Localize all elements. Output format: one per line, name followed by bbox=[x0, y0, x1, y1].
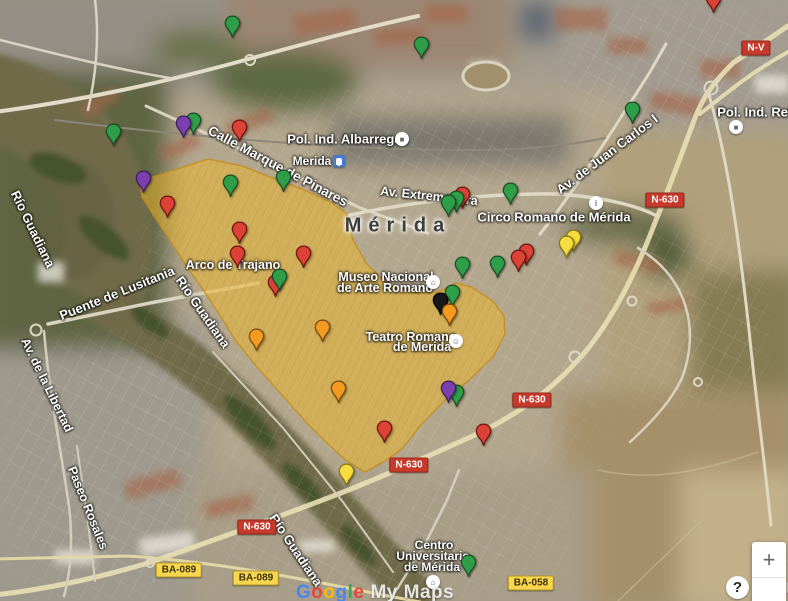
zoom-in-button[interactable]: + bbox=[752, 542, 786, 578]
map-pin-purple[interactable] bbox=[175, 115, 192, 139]
road-badge-ba-058: BA-058 bbox=[508, 576, 554, 591]
road-badge-n-v: N-V bbox=[741, 41, 770, 56]
google-logo-letter: o bbox=[311, 582, 323, 601]
my-maps-label: My Maps bbox=[370, 582, 454, 601]
road-badge-n-630: N-630 bbox=[645, 193, 684, 208]
pol-ind-albarregas-label: Pol. Ind. Albarregas bbox=[287, 132, 409, 147]
map-pin-orange[interactable] bbox=[330, 380, 347, 404]
zoom-slider[interactable] bbox=[752, 578, 786, 601]
map-pin-red[interactable] bbox=[376, 420, 393, 444]
google-logo-letter: G bbox=[296, 582, 311, 601]
teatro-romano-line2-label: de Merida bbox=[393, 340, 451, 354]
map-pin-green[interactable] bbox=[105, 123, 122, 147]
map-pin-red[interactable] bbox=[159, 195, 176, 219]
map-pin-red[interactable] bbox=[295, 245, 312, 269]
map-pin-green[interactable] bbox=[454, 256, 471, 280]
map-pin-orange[interactable] bbox=[248, 328, 265, 352]
pol-ind-reina-label: Pol. Ind. Reina bbox=[717, 105, 788, 120]
map-pin-green[interactable] bbox=[460, 554, 477, 578]
map-pin-red[interactable] bbox=[231, 119, 248, 143]
road-badge-ba-089: BA-089 bbox=[156, 563, 202, 578]
map-pin-green[interactable] bbox=[440, 194, 457, 218]
museo-nacional-line2-label: de Arte Romano bbox=[337, 281, 433, 295]
teatro-romano-poi-icon[interactable]: ☺ bbox=[449, 334, 463, 348]
google-logo-letter: o bbox=[323, 582, 335, 601]
map-pin-green[interactable] bbox=[502, 182, 519, 206]
map-pin-green[interactable] bbox=[224, 15, 241, 39]
map-pin-red[interactable] bbox=[231, 221, 248, 245]
google-my-maps-watermark[interactable]: Google My Maps bbox=[296, 582, 454, 601]
map-pin-green[interactable] bbox=[271, 268, 288, 292]
map-pin-purple[interactable] bbox=[135, 170, 152, 194]
road-badge-n-630: N-630 bbox=[389, 458, 428, 473]
google-logo-letter: g bbox=[336, 582, 348, 601]
map-pin-green[interactable] bbox=[624, 101, 641, 125]
road-badge-n-630: N-630 bbox=[237, 520, 276, 535]
map-pin-orange[interactable] bbox=[314, 319, 331, 343]
help-icon[interactable]: ? bbox=[726, 576, 749, 599]
circo-romano-de-merida-label: Circo Romano de Mérida bbox=[477, 210, 630, 225]
pol-ind-albarregas-poi-icon[interactable]: ■ bbox=[395, 132, 409, 146]
map-pin-orange[interactable] bbox=[441, 303, 458, 327]
map-pin-green[interactable] bbox=[489, 255, 506, 279]
merida-station-label: Merida bbox=[293, 154, 332, 168]
map-pin-purple[interactable] bbox=[440, 380, 457, 404]
pol-ind-reina-poi-icon[interactable]: ■ bbox=[729, 120, 743, 134]
merida-city-label: Mérida bbox=[345, 215, 451, 238]
map-pin-yellow[interactable] bbox=[338, 463, 355, 487]
zoom-control: + bbox=[752, 542, 786, 601]
map-pin-green[interactable] bbox=[222, 174, 239, 198]
map-pin-green[interactable] bbox=[413, 36, 430, 60]
road-badge-n-630: N-630 bbox=[512, 393, 551, 408]
map-pin-red[interactable] bbox=[229, 245, 246, 269]
google-logo: Google bbox=[296, 582, 364, 601]
road-badge-ba-089: BA-089 bbox=[233, 571, 279, 586]
map-canvas[interactable]: Calle Marque de PinaresPol. Ind. Albarre… bbox=[0, 0, 788, 601]
merida-station-transit-icon[interactable] bbox=[333, 155, 345, 167]
museo-arte-romano-poi-icon[interactable]: ⌂ bbox=[426, 275, 440, 289]
map-pin-green[interactable] bbox=[275, 169, 292, 193]
map-pin-red[interactable] bbox=[705, 0, 722, 14]
map-pin-red[interactable] bbox=[510, 249, 527, 273]
centro-universitario-line3-label: de Mérida bbox=[404, 560, 460, 574]
google-logo-letter: e bbox=[353, 582, 364, 601]
circo-romano-poi-icon[interactable]: i bbox=[589, 196, 603, 210]
map-pin-yellow[interactable] bbox=[558, 235, 575, 259]
map-pin-red[interactable] bbox=[475, 423, 492, 447]
